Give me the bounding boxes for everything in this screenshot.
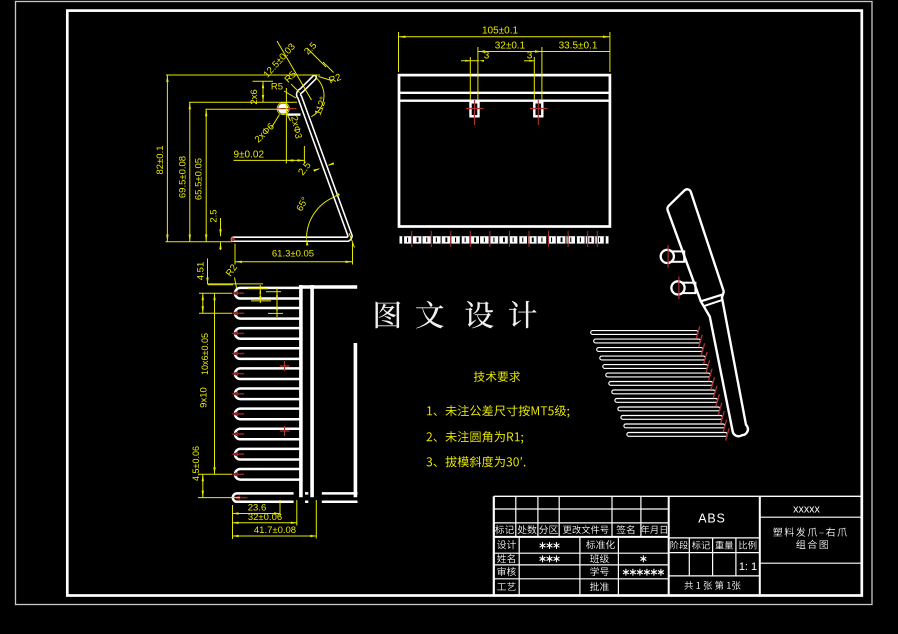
svg-text:4.51: 4.51 (196, 262, 207, 281)
svg-text:61.3±0.05: 61.3±0.05 (272, 249, 314, 260)
svg-text:ABS: ABS (698, 511, 725, 525)
svg-text:1: 1: 1: 1 (739, 561, 757, 573)
svg-text:9x10: 9x10 (199, 387, 210, 408)
svg-text:10x6±0.05: 10x6±0.05 (200, 333, 210, 375)
svg-text:33.5±0.1: 33.5±0.1 (559, 40, 598, 51)
svg-text:82±0.1: 82±0.1 (155, 146, 166, 175)
svg-text:105±0.1: 105±0.1 (482, 26, 519, 37)
svg-text:xxxxx: xxxxx (793, 504, 820, 516)
svg-text:41.7±0.08: 41.7±0.08 (254, 525, 296, 536)
svg-text:32±0.06: 32±0.06 (248, 512, 282, 523)
svg-text:4.5±0.06: 4.5±0.06 (191, 446, 201, 481)
svg-text:69.5±0.08: 69.5±0.08 (177, 156, 188, 198)
svg-text:2.5: 2.5 (208, 209, 219, 222)
svg-text:65.5±0.05: 65.5±0.05 (194, 158, 205, 200)
svg-text:R5: R5 (271, 82, 283, 93)
svg-text:32±0.1: 32±0.1 (495, 40, 526, 51)
svg-text:2x6: 2x6 (249, 89, 260, 104)
svg-text:9±0.02: 9±0.02 (234, 150, 265, 161)
svg-text:3: 3 (527, 50, 533, 61)
svg-text:3: 3 (484, 51, 490, 62)
